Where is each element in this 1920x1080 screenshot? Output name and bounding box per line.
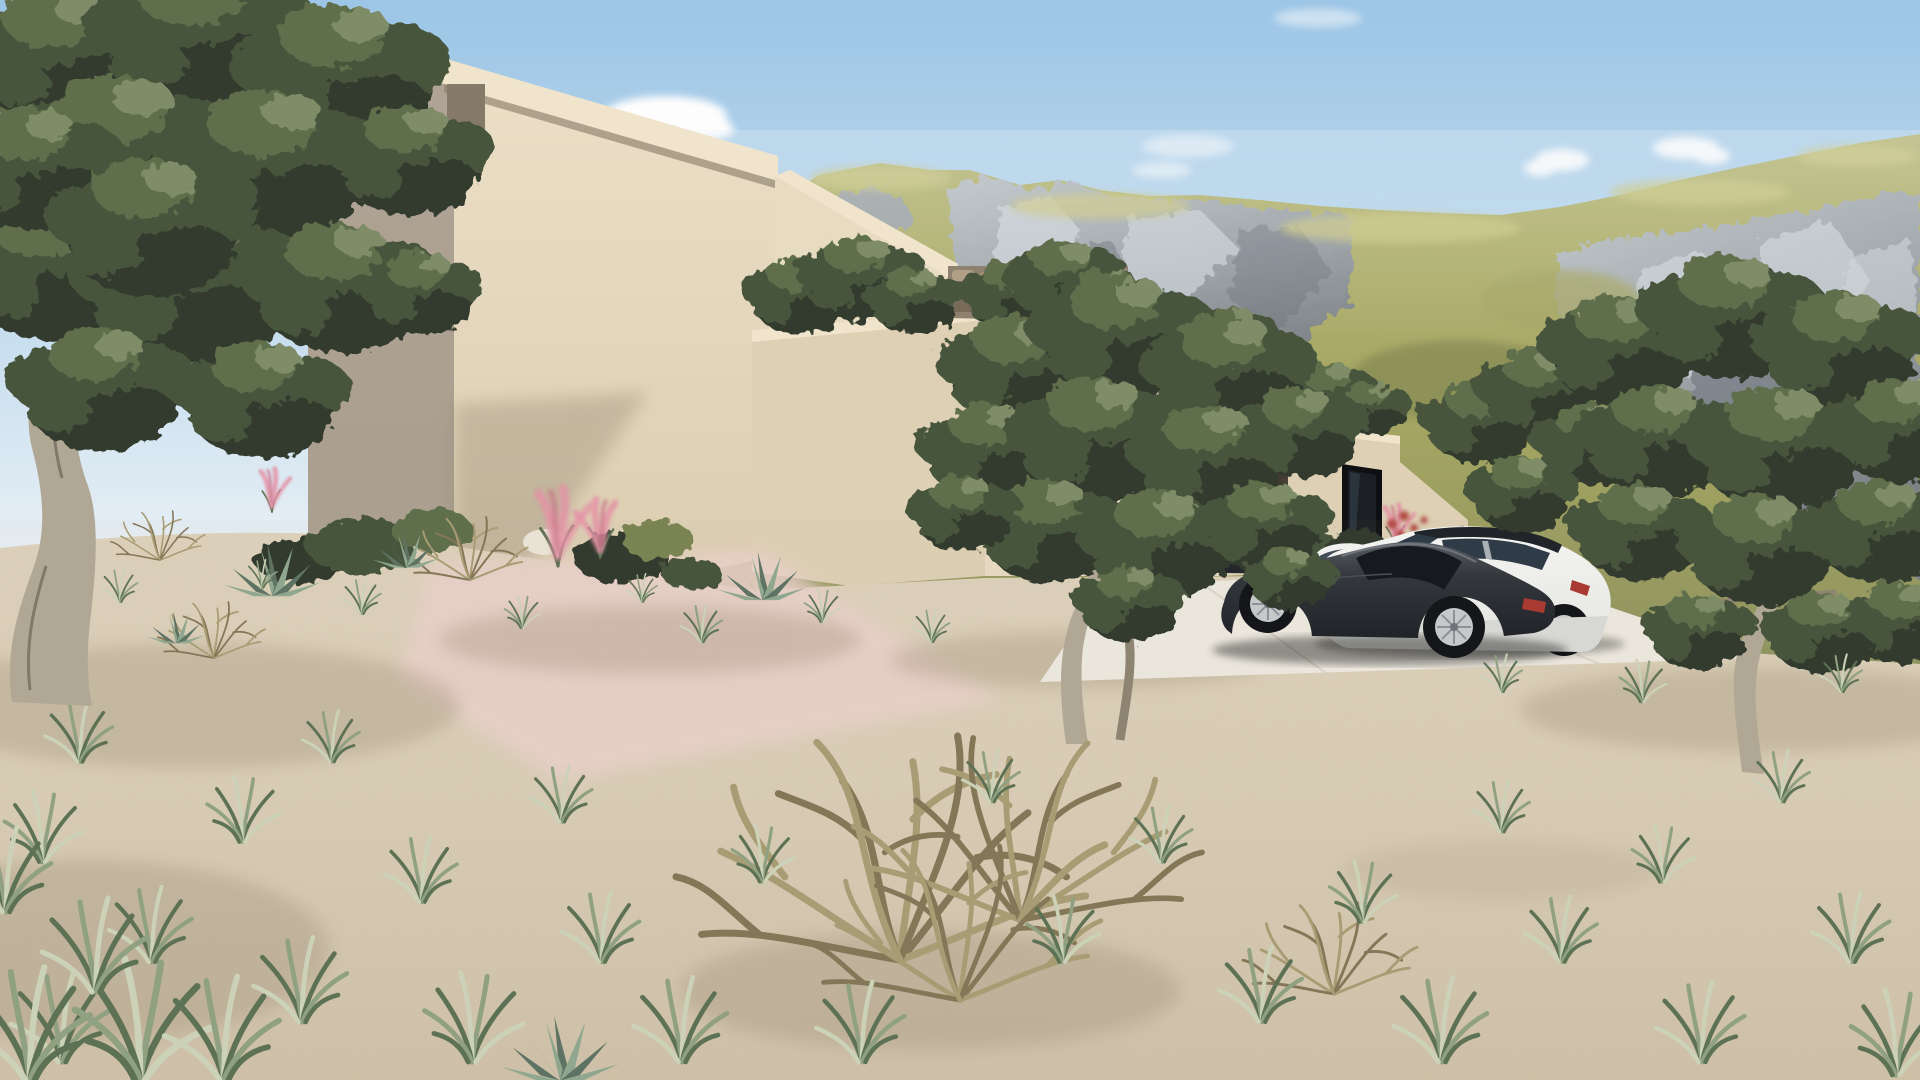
cloud <box>1274 9 1362 27</box>
sports-car-shadow <box>1212 635 1568 665</box>
shrub <box>662 558 722 590</box>
shrub-yellow-green <box>622 520 694 560</box>
architectural-render-viewport <box>0 0 1920 1080</box>
sports-car-rear-wheel <box>1423 596 1485 658</box>
villa-landscape-render <box>0 0 1920 1080</box>
